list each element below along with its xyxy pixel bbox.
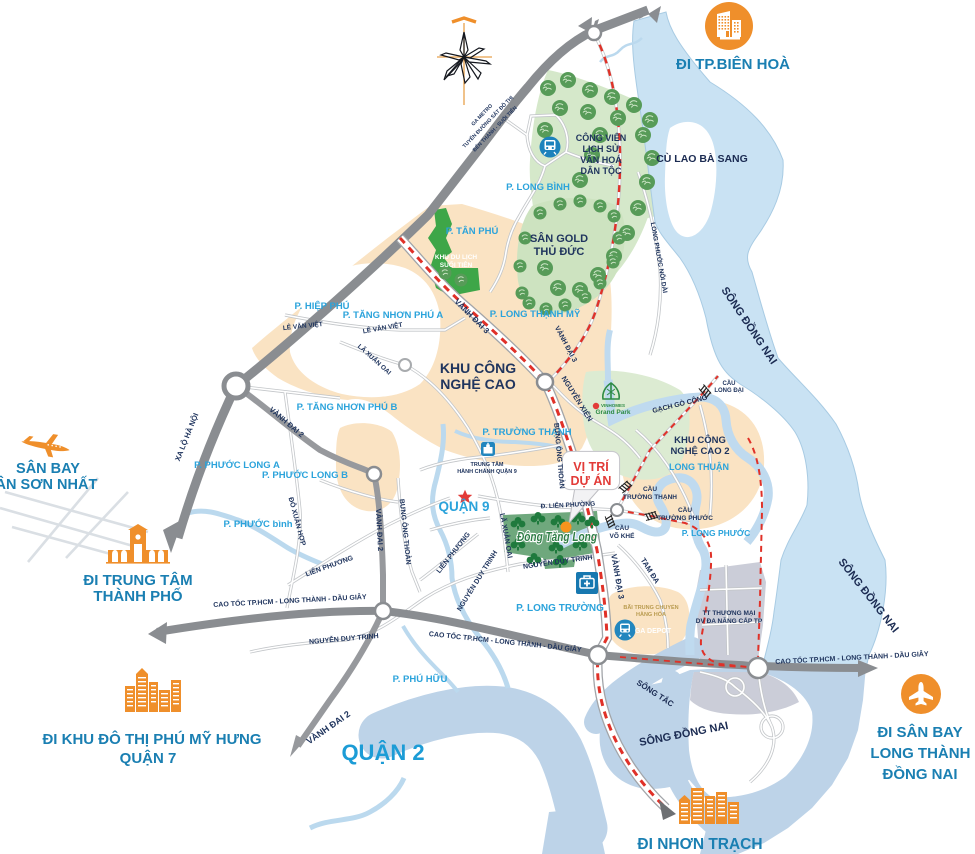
svg-text:P. TĂNG NHƠN PHÚ B: P. TĂNG NHƠN PHÚ B bbox=[297, 401, 398, 413]
svg-text:ĐI TP.BIÊN HOÀ: ĐI TP.BIÊN HOÀ bbox=[676, 55, 790, 73]
svg-text:LONG THUẬN: LONG THUẬN bbox=[669, 461, 729, 472]
svg-text:ĐI NHƠN TRẠCH: ĐI NHƠN TRẠCH bbox=[637, 836, 762, 853]
svg-text:BÃI TRUNG CHUYỂN: BÃI TRUNG CHUYỂN bbox=[623, 604, 678, 611]
svg-text:THỦ ĐỨC: THỦ ĐỨC bbox=[534, 245, 585, 258]
svg-text:SÂN GOLD: SÂN GOLD bbox=[530, 232, 588, 245]
svg-text:VINHOMES: VINHOMES bbox=[601, 403, 625, 408]
svg-text:DÂN TỘC: DÂN TỘC bbox=[581, 165, 622, 176]
svg-text:KHU DU LỊCH: KHU DU LỊCH bbox=[435, 254, 478, 261]
svg-text:BƯNG ÔNG THOÀN: BƯNG ÔNG THOÀN bbox=[398, 498, 414, 565]
svg-text:CÙ LAO BÀ SANG: CÙ LAO BÀ SANG bbox=[656, 152, 748, 165]
svg-text:THÀNH PHỐ: THÀNH PHỐ bbox=[93, 587, 182, 605]
svg-text:TT THƯƠNG MẠI: TT THƯƠNG MẠI bbox=[703, 610, 756, 617]
svg-text:GA DEPOT: GA DEPOT bbox=[635, 628, 672, 635]
svg-text:KHU CÔNG: KHU CÔNG bbox=[440, 359, 516, 376]
svg-text:ĐI KHU ĐÔ THỊ PHÚ MỸ HƯNG: ĐI KHU ĐÔ THỊ PHÚ MỸ HƯNG bbox=[42, 730, 261, 748]
svg-text:P. HIỆP PHÚ: P. HIỆP PHÚ bbox=[294, 300, 349, 312]
svg-text:LỊCH SỬ: LỊCH SỬ bbox=[583, 143, 621, 154]
svg-text:HÀNH CHÁNH QUẬN 9: HÀNH CHÁNH QUẬN 9 bbox=[457, 468, 517, 475]
svg-text:LONG THÀNH -: LONG THÀNH - bbox=[870, 745, 975, 762]
svg-text:TRƯỜNG THẠNH: TRƯỜNG THẠNH bbox=[623, 492, 677, 501]
svg-text:VÀNH ĐẠI 3: VÀNH ĐẠI 3 bbox=[609, 553, 626, 600]
svg-text:DỰ ÁN: DỰ ÁN bbox=[571, 473, 612, 488]
svg-text:P. PHƯỚC bình: P. PHƯỚC bình bbox=[223, 518, 292, 530]
svg-text:P. LONG TRƯỜNG: P. LONG TRƯỜNG bbox=[516, 601, 604, 614]
svg-text:P. PHƯỚC LONG B: P. PHƯỚC LONG B bbox=[262, 469, 348, 481]
svg-text:P. LONG BÌNH: P. LONG BÌNH bbox=[506, 182, 570, 193]
svg-text:TRUNG TÂM: TRUNG TÂM bbox=[471, 461, 504, 468]
svg-text:VÀNH ĐAI 2: VÀNH ĐAI 2 bbox=[374, 508, 385, 551]
svg-text:P. TĂNG NHƠN PHÚ A: P. TĂNG NHƠN PHÚ A bbox=[343, 309, 444, 321]
svg-text:QUẬN 7: QUẬN 7 bbox=[120, 749, 177, 767]
svg-text:ĐI SÂN BAY: ĐI SÂN BAY bbox=[877, 723, 962, 741]
svg-text:VĂN HOÁ: VĂN HOÁ bbox=[580, 155, 622, 165]
svg-text:NGHỆ CAO 2: NGHỆ CAO 2 bbox=[670, 445, 729, 457]
svg-text:HÀNG HÓA: HÀNG HÓA bbox=[636, 610, 666, 618]
svg-text:Grand Park: Grand Park bbox=[595, 409, 630, 416]
svg-text:TÂN SƠN NHẤT: TÂN SƠN NHẤT bbox=[0, 475, 97, 493]
svg-text:QUẬN 2: QUẬN 2 bbox=[341, 740, 424, 765]
svg-text:Đông Tăng Long: Đông Tăng Long bbox=[517, 529, 597, 544]
svg-text:QUẬN 9: QUẬN 9 bbox=[438, 499, 489, 514]
svg-text:ĐỒNG NAI: ĐỒNG NAI bbox=[883, 765, 958, 783]
svg-text:ĐI TRUNG TÂM: ĐI TRUNG TÂM bbox=[83, 571, 192, 589]
svg-text:P. PHÚ HỮU: P. PHÚ HỮU bbox=[393, 673, 448, 685]
svg-text:NGHỆ CAO: NGHỆ CAO bbox=[440, 375, 516, 392]
svg-text:P. LONG THẠNH MỸ: P. LONG THẠNH MỸ bbox=[490, 309, 581, 320]
svg-text:TRƯỜNG PHƯỚC: TRƯỜNG PHƯỚC bbox=[657, 513, 713, 522]
svg-text:SÂN BAY: SÂN BAY bbox=[16, 459, 80, 477]
svg-text:KHU CÔNG: KHU CÔNG bbox=[674, 434, 726, 446]
svg-text:LIÊN PHƯƠNG: LIÊN PHƯƠNG bbox=[304, 553, 354, 579]
svg-text:P. TÂN PHÚ: P. TÂN PHÚ bbox=[446, 225, 499, 237]
svg-text:P. LONG PHƯỚC: P. LONG PHƯỚC bbox=[682, 527, 750, 538]
svg-text:CẦU: CẦU bbox=[723, 380, 736, 387]
svg-text:CÔNG VIÊN: CÔNG VIÊN bbox=[576, 132, 627, 143]
svg-text:LONG ĐẠI: LONG ĐẠI bbox=[714, 388, 744, 394]
svg-text:VỊ TRÍ: VỊ TRÍ bbox=[573, 459, 609, 474]
svg-text:XA LỘ HÀ NỘI: XA LỘ HÀ NỘI bbox=[173, 412, 200, 463]
